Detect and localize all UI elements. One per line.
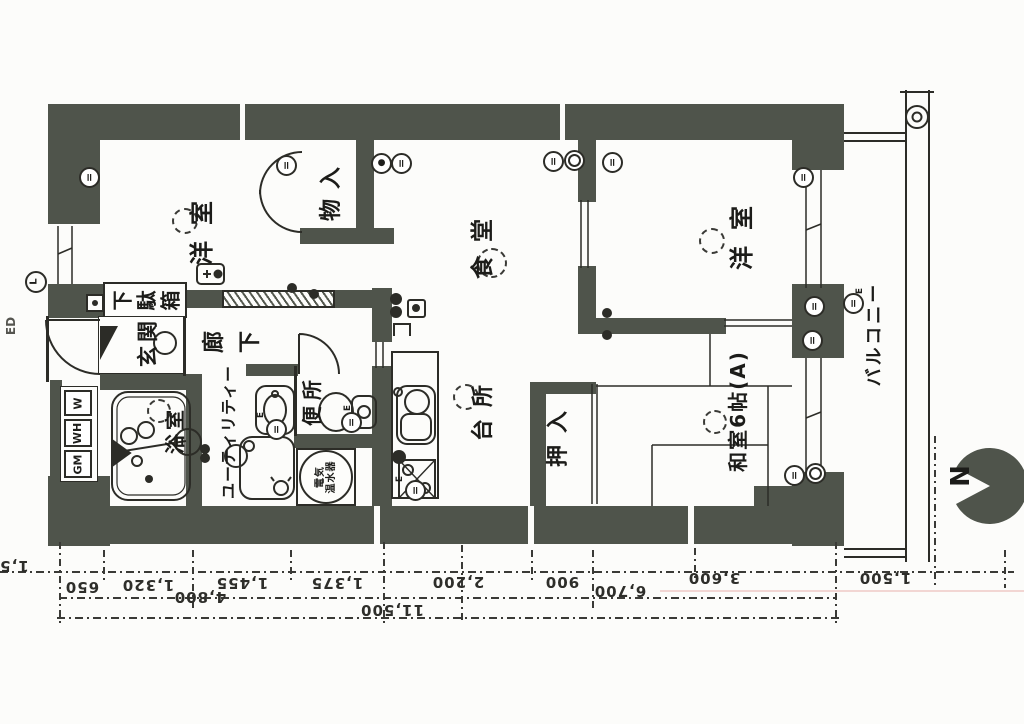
storage-door-arc-bottom	[260, 190, 302, 232]
washer-faucet-ear1	[271, 477, 274, 481]
room-label-west2: 洋室	[726, 185, 752, 275]
washer-faucet	[274, 481, 288, 495]
room-label-kitchen: 台所	[468, 370, 494, 444]
scan-artifact-line	[660, 590, 1024, 592]
washing-machine	[240, 437, 294, 499]
gas-box-dot	[413, 305, 419, 311]
floor-plan: = = ● = = = = = = = E = = E = E = E L 洋室…	[0, 0, 1024, 724]
room-label-hallway: 廊下	[194, 328, 266, 356]
double-circle-icon	[805, 463, 826, 484]
outlet-icon: =	[804, 296, 825, 317]
outlet-icon: =	[79, 167, 100, 188]
room-label-dining: 食堂	[467, 202, 493, 282]
meter-box-w: W	[64, 390, 92, 416]
dim-ext-line	[835, 542, 837, 624]
room-label-bath: 浴室	[161, 404, 185, 456]
outlet-icon: =	[784, 465, 805, 486]
dim-900: 900	[539, 574, 585, 590]
room-label-balcony: バルコニー	[863, 279, 883, 389]
meter-box-gm: GM	[64, 450, 92, 478]
dim-ext-line	[1004, 550, 1006, 588]
balcony-drain-inner	[913, 113, 922, 122]
entrance-door-arc	[46, 320, 100, 374]
switch-glyph	[203, 270, 223, 279]
dim-2200: 2,200	[427, 574, 489, 590]
outlet-icon: =	[276, 155, 297, 176]
dim-left-fragment: 1,5	[0, 558, 36, 574]
dim-650: 650	[57, 579, 107, 595]
dim-line-row3	[57, 617, 841, 619]
dim-balcony-1500: 1,500	[854, 570, 916, 586]
balcony-railing	[844, 90, 934, 562]
dim-ext-line	[531, 550, 533, 584]
double-circle-icon	[564, 150, 585, 171]
dim-3600: 3,600	[683, 570, 745, 586]
toilet-door-arc	[299, 334, 339, 374]
edge-fragment-label: ED	[3, 313, 19, 339]
lamp-label: L	[29, 278, 40, 284]
light-icon: ●	[371, 153, 392, 174]
outlet-icon: =	[391, 153, 412, 174]
outlet-icon: =	[793, 167, 814, 188]
bath-handle-1	[121, 428, 137, 444]
tatami-lines	[596, 334, 792, 506]
dim-4800: 4,800	[169, 589, 231, 605]
outlet-icon: =	[341, 412, 362, 433]
outlet-icon: =	[802, 330, 823, 351]
room-label-west1: 洋室	[186, 180, 212, 270]
outlet-icon: =	[602, 152, 623, 173]
shoe-cabinet-label: 下駄箱	[107, 286, 183, 314]
genkan-step	[100, 326, 118, 360]
meter-box-wh: WH	[64, 419, 92, 447]
earth-label: E	[256, 412, 266, 418]
outlet-icon: =	[543, 151, 564, 172]
earth-label: E	[395, 476, 405, 482]
room-label-storage: 物入	[316, 152, 342, 226]
earth-label: E	[343, 405, 353, 411]
bath-handle-2	[138, 422, 154, 438]
balcony-drain-outer	[906, 106, 928, 128]
gas-cock-1	[391, 294, 401, 304]
bath-knob	[132, 456, 142, 466]
north-label: N	[946, 461, 976, 491]
outlet-icon: =	[266, 419, 287, 440]
room-label-tatami: 和室6帖(A)	[724, 341, 748, 481]
gas-cup	[394, 324, 410, 336]
gas-cock-2	[391, 307, 401, 317]
sink-drain	[401, 414, 431, 440]
outlet-icon: =	[405, 480, 426, 501]
water-heater-label: 電気 温水器	[310, 453, 342, 501]
room-label-entrance: 玄関	[135, 313, 159, 371]
room-label-toilet: 便所	[298, 369, 322, 431]
dim-1375: 1,375	[306, 575, 368, 591]
dim-11500: 11,500	[357, 602, 427, 618]
dim-ext-line	[934, 436, 936, 586]
washer-faucet-ear2	[288, 477, 291, 481]
dim-6700: 6,700	[589, 583, 651, 599]
room-label-closet: 押入	[543, 394, 569, 472]
room-label-utility: ユーティリティー	[218, 362, 236, 502]
dim-ext-line	[290, 550, 292, 584]
sink-bowl	[405, 390, 429, 414]
